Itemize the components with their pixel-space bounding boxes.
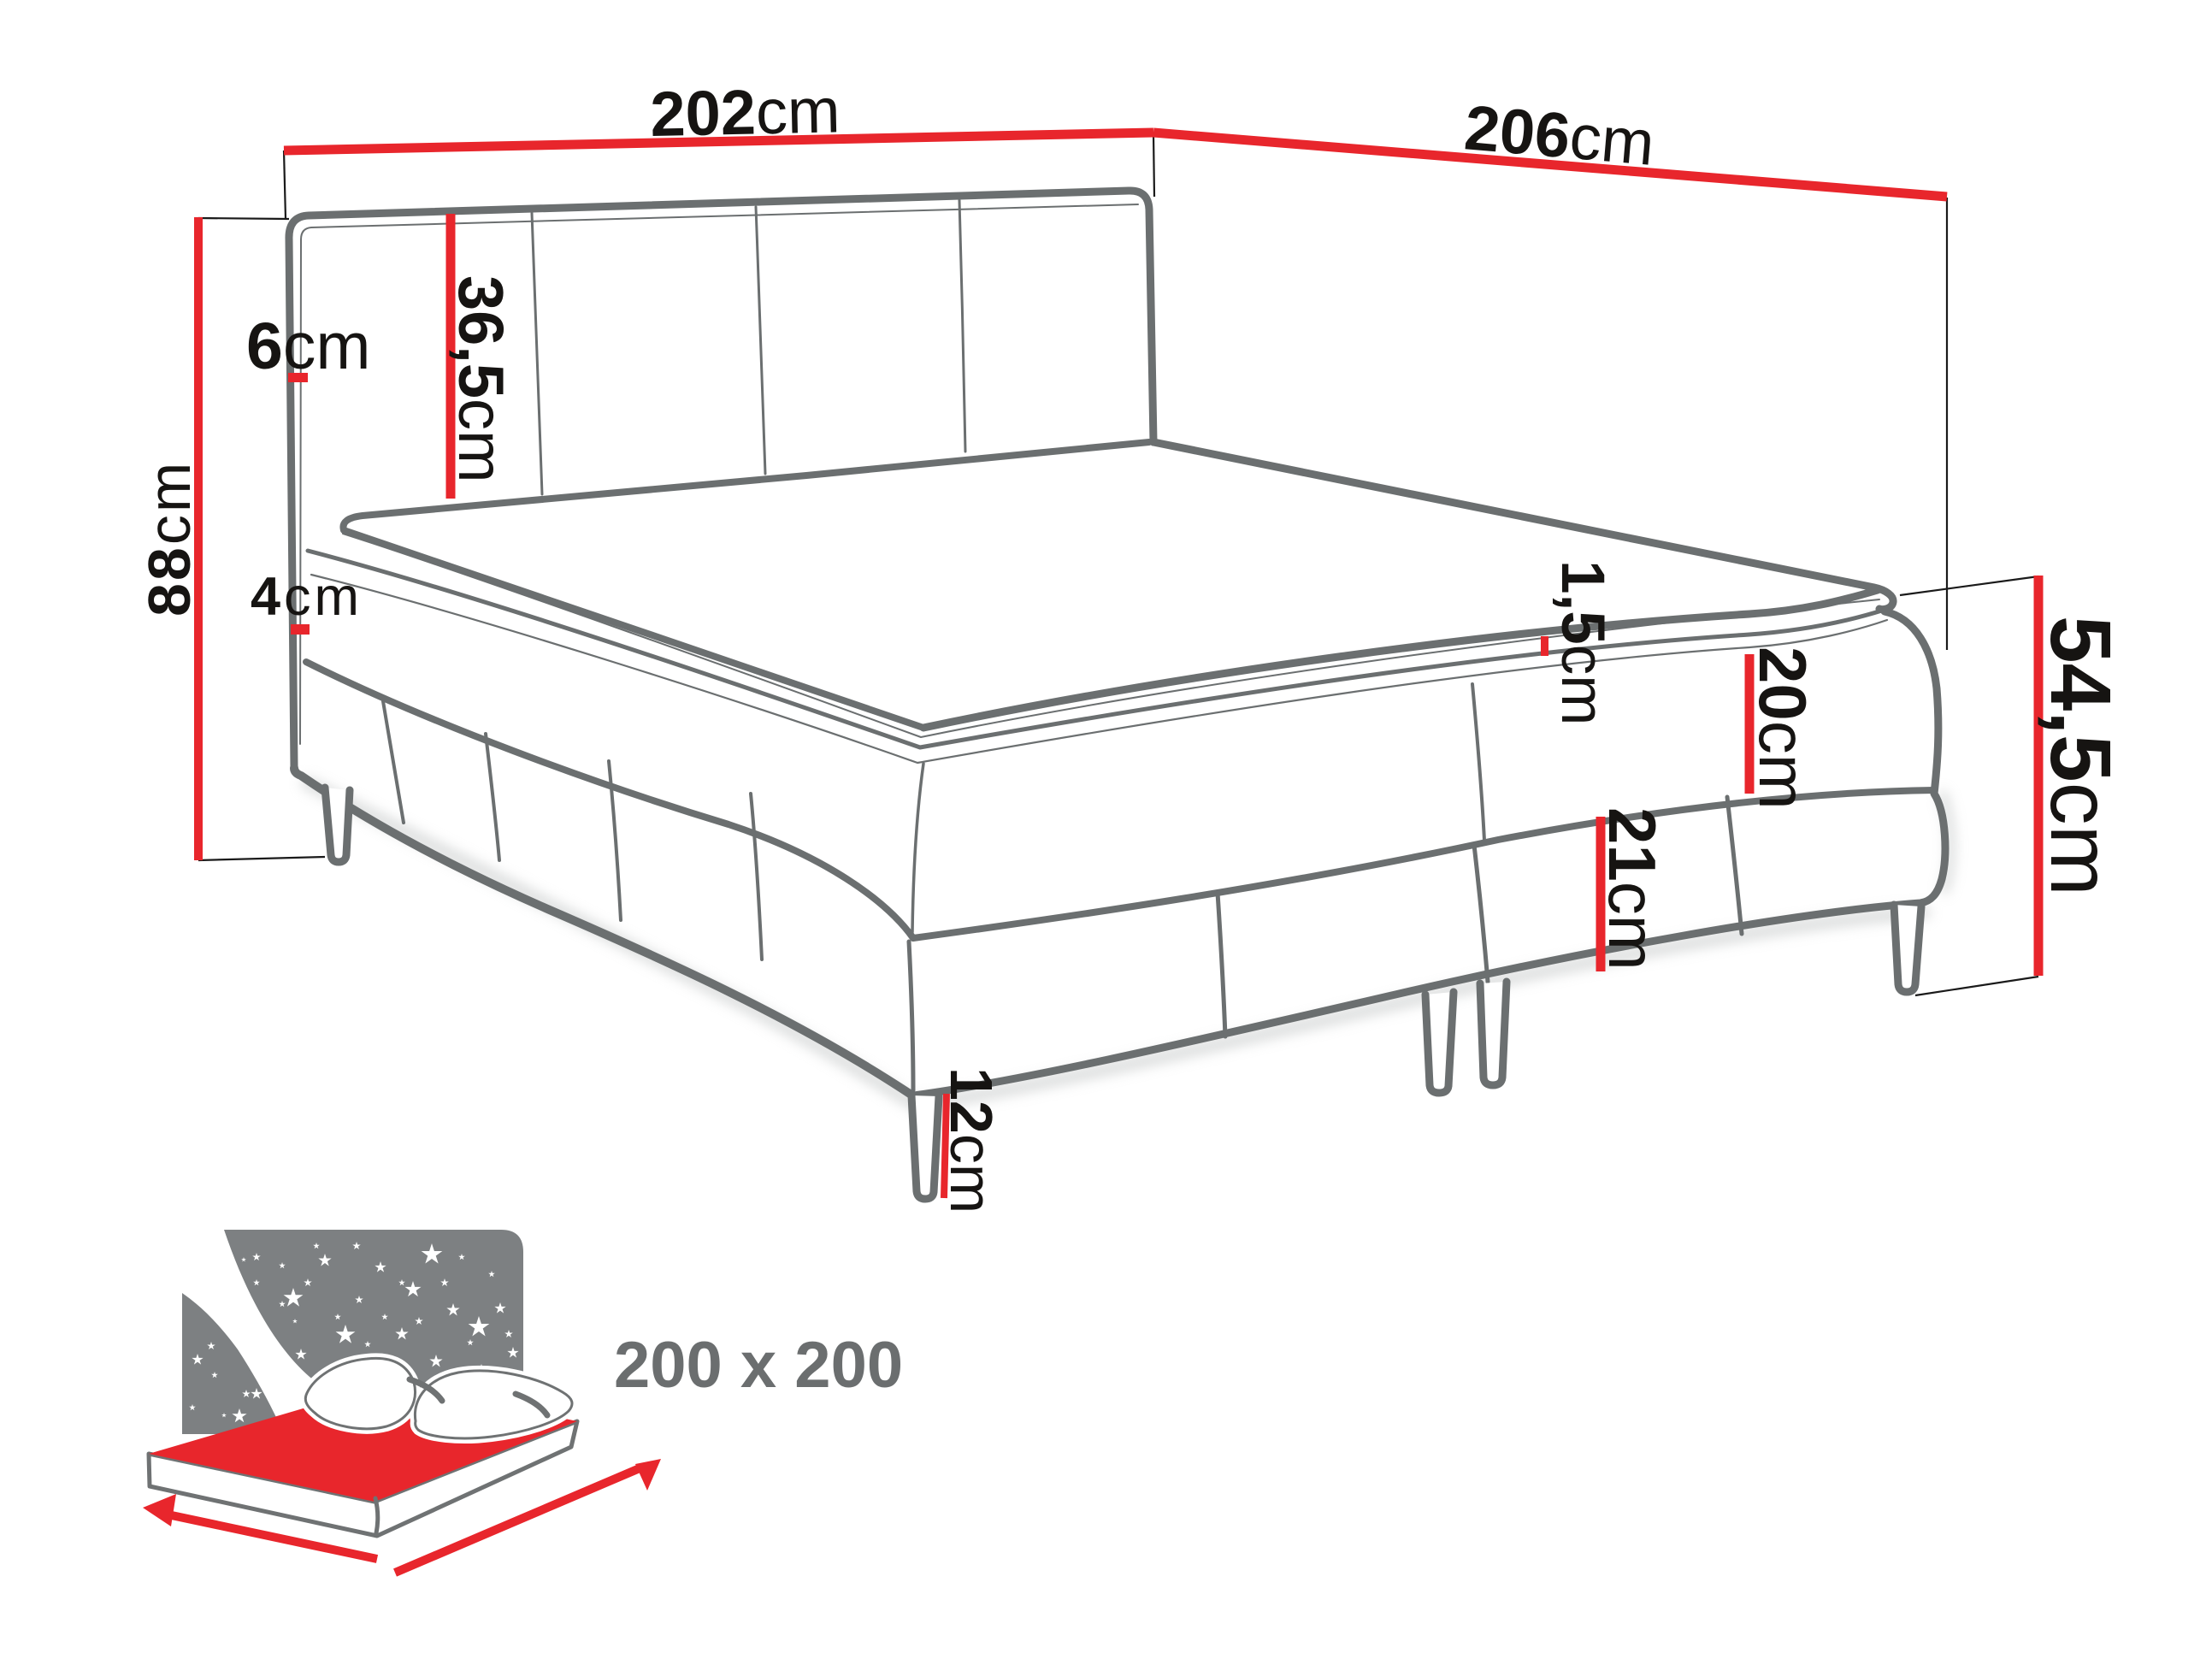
svg-text:88cm: 88cm: [136, 460, 203, 617]
svg-text:4cm: 4cm: [251, 567, 363, 627]
svg-text:20cm: 20cm: [1745, 646, 1820, 810]
svg-text:6cm: 6cm: [246, 310, 370, 383]
svg-text:21cm: 21cm: [1595, 807, 1670, 971]
svg-text:54,5cm: 54,5cm: [2032, 616, 2128, 896]
svg-text:200 x 200: 200 x 200: [614, 1329, 903, 1402]
svg-text:12cm: 12cm: [938, 1067, 1005, 1213]
svg-text:1,5cm: 1,5cm: [1548, 560, 1616, 725]
svg-text:202cm: 202cm: [650, 74, 841, 150]
svg-text:36,5cm: 36,5cm: [445, 275, 516, 483]
